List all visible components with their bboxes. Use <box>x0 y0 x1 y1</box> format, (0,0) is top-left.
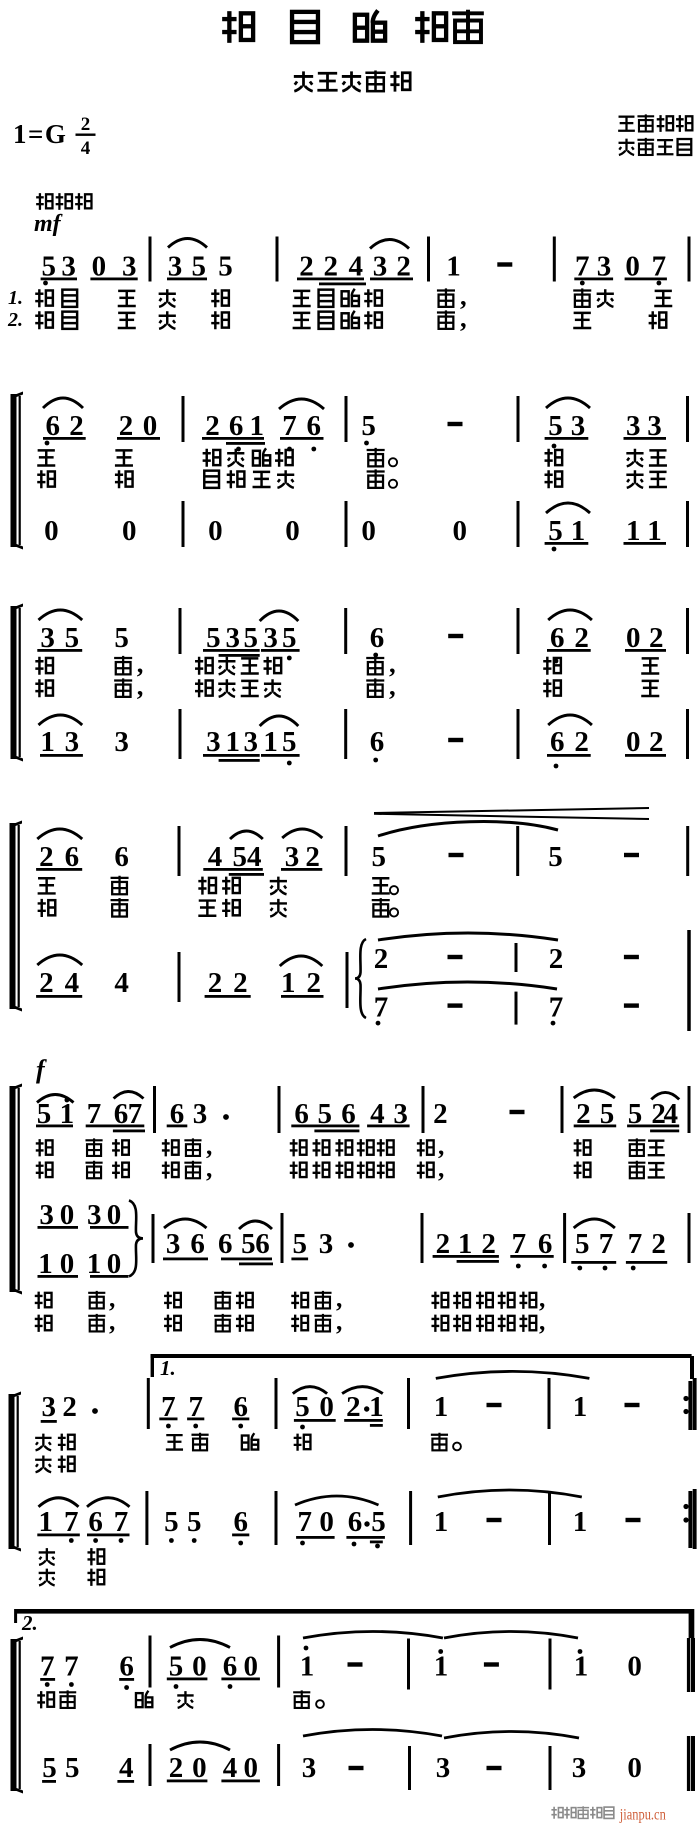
svg-text:,: , <box>206 1154 212 1182</box>
svg-text:0: 0 <box>192 1752 207 1784</box>
svg-text:4: 4 <box>114 967 129 999</box>
svg-text:2: 2 <box>374 943 389 975</box>
svg-text:0: 0 <box>44 515 59 547</box>
svg-text:,: , <box>137 671 144 701</box>
svg-text:1: 1 <box>574 1651 589 1683</box>
svg-text:1: 1 <box>40 726 55 758</box>
svg-text:2: 2 <box>651 1228 666 1260</box>
svg-text:5: 5 <box>164 1506 179 1538</box>
svg-text:1: 1 <box>434 1391 449 1423</box>
svg-text:2: 2 <box>549 943 564 975</box>
svg-text:1=G: 1=G <box>13 119 67 149</box>
svg-text:4: 4 <box>81 138 91 159</box>
svg-text:5: 5 <box>575 1228 590 1260</box>
svg-text:2: 2 <box>208 967 223 999</box>
svg-text:7: 7 <box>599 1228 614 1260</box>
svg-text:6: 6 <box>255 1228 270 1260</box>
svg-text:3: 3 <box>572 1752 587 1784</box>
svg-text:5: 5 <box>548 841 563 873</box>
svg-text:1: 1 <box>573 1506 588 1538</box>
svg-text:6: 6 <box>550 726 565 758</box>
svg-text:1: 1 <box>300 1651 315 1683</box>
svg-text:6: 6 <box>218 1228 233 1260</box>
svg-text:,: , <box>389 671 396 701</box>
svg-text:1: 1 <box>434 1506 449 1538</box>
svg-text:mf: mf <box>34 211 63 237</box>
svg-text:1: 1 <box>573 1391 588 1423</box>
svg-text:5: 5 <box>241 1228 256 1260</box>
svg-text:3: 3 <box>436 1752 451 1784</box>
svg-text:7: 7 <box>297 1506 312 1538</box>
svg-text:1.: 1. <box>160 1356 176 1380</box>
svg-text:2.: 2. <box>7 309 23 331</box>
svg-text:3: 3 <box>302 1752 317 1784</box>
svg-text:5: 5 <box>65 1752 80 1784</box>
svg-text:0: 0 <box>208 515 223 547</box>
svg-text:6: 6 <box>88 1506 103 1538</box>
svg-text:2.: 2. <box>21 1611 38 1635</box>
svg-text:3: 3 <box>193 1098 208 1130</box>
svg-text:,: , <box>438 1154 444 1182</box>
svg-text:1: 1 <box>446 251 461 283</box>
svg-text:7: 7 <box>628 1228 643 1260</box>
svg-text:2: 2 <box>39 967 54 999</box>
svg-text:5: 5 <box>293 1228 308 1260</box>
svg-text:,: , <box>109 1307 115 1335</box>
svg-text:4: 4 <box>223 1752 238 1784</box>
svg-text:5: 5 <box>282 726 297 758</box>
svg-text:0: 0 <box>244 1752 259 1784</box>
svg-text:6: 6 <box>114 841 129 873</box>
svg-text:1: 1 <box>39 1506 54 1538</box>
svg-text:7: 7 <box>40 1651 55 1683</box>
svg-text:5: 5 <box>114 622 129 654</box>
svg-text:6: 6 <box>119 1651 134 1683</box>
svg-text:3: 3 <box>243 726 258 758</box>
svg-text:2: 2 <box>307 967 322 999</box>
svg-text:0: 0 <box>319 1506 334 1538</box>
svg-text:5: 5 <box>361 410 376 442</box>
svg-text:2: 2 <box>169 1752 184 1784</box>
svg-text:4: 4 <box>119 1752 134 1784</box>
svg-text:2: 2 <box>81 114 91 135</box>
svg-text:,: , <box>336 1307 342 1335</box>
svg-text:6: 6 <box>370 726 385 758</box>
svg-text:5: 5 <box>187 1506 202 1538</box>
svg-text:4: 4 <box>65 967 80 999</box>
svg-text:0: 0 <box>122 515 137 547</box>
svg-text:jianpu.cn: jianpu.cn <box>619 1807 666 1824</box>
svg-text:0: 0 <box>627 1752 642 1784</box>
svg-text:0: 0 <box>626 726 641 758</box>
svg-text:5: 5 <box>218 251 233 283</box>
svg-text:5: 5 <box>371 1506 386 1538</box>
svg-text:1: 1 <box>434 1651 449 1683</box>
svg-text:3: 3 <box>41 1391 56 1423</box>
svg-text:6: 6 <box>370 622 385 654</box>
svg-text:3: 3 <box>166 1228 181 1260</box>
svg-text:7: 7 <box>64 1651 79 1683</box>
svg-text:0: 0 <box>627 1651 642 1683</box>
svg-text:0: 0 <box>285 515 300 547</box>
svg-text:1: 1 <box>225 726 240 758</box>
svg-text:3: 3 <box>206 726 221 758</box>
svg-text:1: 1 <box>369 1391 384 1423</box>
svg-text:6: 6 <box>233 1506 248 1538</box>
svg-text:5: 5 <box>295 1391 310 1423</box>
svg-text:2: 2 <box>233 967 248 999</box>
svg-text:3: 3 <box>114 726 129 758</box>
svg-text:5: 5 <box>42 1752 57 1784</box>
svg-text:7: 7 <box>374 992 389 1024</box>
svg-text:3: 3 <box>65 726 80 758</box>
svg-text:0: 0 <box>453 515 468 547</box>
svg-text:2: 2 <box>649 726 664 758</box>
svg-text:2: 2 <box>574 726 589 758</box>
svg-text:,: , <box>539 1307 545 1335</box>
svg-text:2: 2 <box>433 1098 448 1130</box>
svg-text:0: 0 <box>361 515 376 547</box>
svg-text:2: 2 <box>346 1391 361 1423</box>
svg-text:7: 7 <box>64 1506 79 1538</box>
svg-text:7: 7 <box>549 992 564 1024</box>
svg-text:1: 1 <box>281 967 296 999</box>
svg-text:5: 5 <box>371 841 386 873</box>
svg-text:1: 1 <box>263 726 278 758</box>
svg-text:6: 6 <box>348 1506 363 1538</box>
svg-text:0: 0 <box>319 1391 334 1423</box>
svg-text:,: , <box>460 303 467 333</box>
svg-text:3: 3 <box>319 1228 334 1260</box>
svg-text:2: 2 <box>62 1391 77 1423</box>
svg-text:6: 6 <box>190 1228 205 1260</box>
svg-text:7: 7 <box>114 1506 129 1538</box>
svg-text:1.: 1. <box>8 287 23 309</box>
